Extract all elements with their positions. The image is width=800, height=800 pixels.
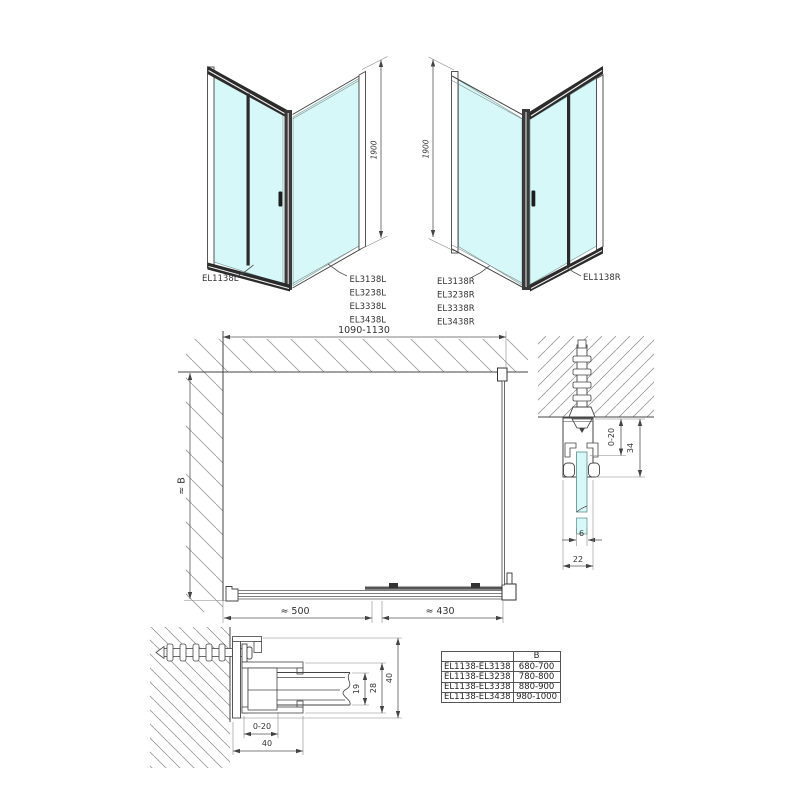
- right-view-door-leading-edge: [567, 94, 570, 266]
- right-view-panel-label-1: EL3138R: [437, 277, 475, 287]
- table-header-row: B: [442, 652, 561, 662]
- right-view-panel-label-3: EL3338R: [437, 304, 475, 314]
- plan-side-panel-glass: [502, 381, 505, 585]
- right-view-side-panel-frame: [452, 72, 459, 254]
- left-view-height-dim-label: 1900: [370, 140, 379, 159]
- door-handle: [532, 191, 536, 207]
- left-view-panel-label-1: EL3138L: [350, 275, 387, 285]
- right-view-panel-leader: [472, 266, 490, 278]
- table-row: EL1138-EL3338 880-900: [442, 682, 561, 692]
- left-view-panel-label-3: EL3338L: [350, 302, 387, 312]
- table-cell-b: 780-800: [513, 672, 560, 682]
- detail2-pocket-dim-label: 19: [352, 684, 361, 694]
- left-view-panel-label-2: EL3238L: [350, 289, 387, 299]
- plan-sliding-door-panel: [365, 587, 503, 590]
- plan-depth-dim-label: ≈ B: [177, 477, 188, 495]
- plan-view: 1090-1130 ≈ B ≈ 500 ≈ 430: [177, 325, 529, 623]
- left-view-panel-leader: [328, 264, 347, 276]
- left-view-side-panel-frame: [359, 72, 366, 251]
- outer-channel-top-arm: [242, 662, 303, 668]
- detail-glass-panel: [577, 452, 588, 512]
- table-cell-b: 980-1000: [513, 692, 560, 702]
- table-cell-model: EL1138-EL3138: [442, 662, 514, 672]
- plan-fixed-dim-label: ≈ 430: [425, 606, 454, 617]
- right-view-door-leader: [567, 268, 582, 277]
- plan-left-wall-hatch: [186, 372, 223, 612]
- right-view-height-dim-label: 1900: [422, 139, 431, 158]
- table-header-b: B: [513, 652, 560, 662]
- table-cell-model: EL1138-EL3338: [442, 682, 514, 692]
- table-row: EL1138-EL3138 680-700: [442, 662, 561, 672]
- drawing-svg: 1900 EL1138L EL3138L EL3238L EL3338L EL3…: [0, 0, 800, 800]
- right-view-wall-profile: [597, 75, 604, 250]
- detail-wall-hatch: [538, 336, 654, 417]
- wall-profile-section-detail: 0-20 34 6 22: [538, 336, 654, 570]
- left-view-door-leading-edge: [247, 94, 250, 266]
- inner-channel: [248, 668, 277, 710]
- table-header-model: [442, 652, 514, 662]
- size-table: B EL1138-EL3138 680-700 EL1138-EL3238 78…: [441, 651, 561, 703]
- plan-opening-dim-label: ≈ 500: [280, 606, 309, 617]
- table-row: EL1138-EL3238 780-800: [442, 672, 561, 682]
- left-version-perspective-view: 1900 EL1138L EL3138L EL3238L EL3338L EL3…: [202, 57, 388, 326]
- right-view-panel-label-4: EL3438R: [437, 318, 475, 328]
- plan-top-wall-hatch: [186, 339, 528, 372]
- plan-roller-left: [389, 583, 398, 588]
- right-view-panel-label-2: EL3238R: [437, 291, 475, 301]
- detail-adjust-dim-label: 0-20: [607, 428, 616, 446]
- plan-right-stub: [507, 573, 512, 584]
- detail-glass-dim-label: 6: [579, 529, 584, 538]
- right-version-perspective-view: 1900 EL3138R EL3238R EL3338R EL3438R EL1…: [422, 57, 621, 328]
- technical-drawing-sheet: 1900 EL1138L EL3138L EL3238L EL3338L EL3…: [0, 0, 800, 800]
- plan-width-dim-label: 1090-1130: [338, 325, 390, 336]
- right-view-door-label: EL1138R: [583, 273, 621, 283]
- plan-side-panel-top-bracket: [498, 368, 508, 381]
- left-view-door-label: EL1138L: [202, 274, 239, 284]
- detail2-profile-dim-label: 40: [385, 673, 394, 683]
- detail2-channel-dim-label: 28: [369, 683, 378, 693]
- table-cell-b: 680-700: [513, 662, 560, 672]
- detail2-adjust-dim-label: 0-20: [253, 722, 271, 731]
- left-view-panel-label-4: EL3438L: [350, 316, 387, 326]
- table-cell-model: EL1138-EL3438: [442, 692, 514, 702]
- profile-clip-left: [565, 443, 576, 457]
- table-cell-b: 880-900: [513, 682, 560, 692]
- table-cell-model: EL1138-EL3238: [442, 672, 514, 682]
- detail2-width-dim-label: 40: [262, 739, 272, 748]
- table-row: EL1138-EL3438 980-1000: [442, 692, 561, 702]
- floor-profile-wall-plate: [233, 638, 241, 718]
- left-view-wall-profile: [208, 67, 215, 268]
- floor-profile-section-detail: 19 28 40 0-20 40: [150, 627, 402, 768]
- detail-depth-dim-label: 22: [573, 555, 583, 564]
- plan-roller-right: [471, 583, 480, 588]
- plan-track-left-cap: [226, 587, 238, 602]
- right-view-side-panel-glass: [459, 80, 523, 285]
- door-handle: [279, 192, 283, 207]
- plan-track-right-cap: [502, 584, 516, 600]
- detail-height-dim-label: 34: [626, 443, 635, 453]
- left-view-side-panel-glass: [293, 79, 359, 286]
